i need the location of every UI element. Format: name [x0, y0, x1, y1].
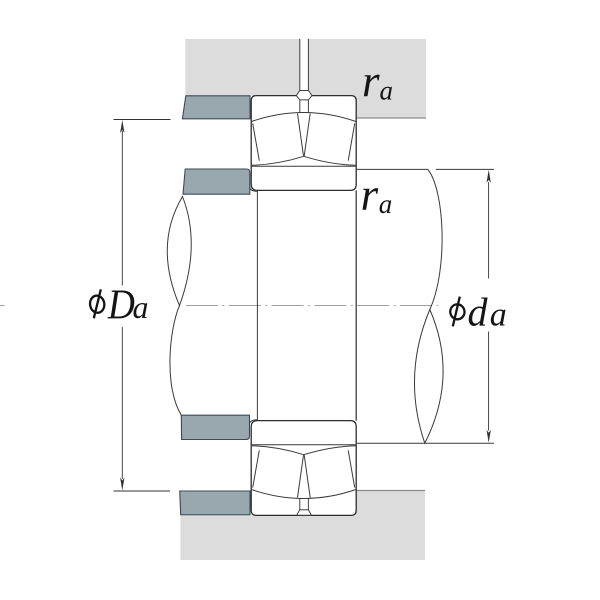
svg-text:r: r: [362, 56, 380, 106]
svg-text:a: a: [379, 189, 393, 219]
svg-text:D: D: [107, 282, 135, 328]
svg-text:a: a: [380, 75, 394, 105]
svg-text:a: a: [490, 296, 507, 333]
svg-text:a: a: [133, 289, 149, 325]
svg-text:r: r: [361, 170, 379, 220]
svg-text:d: d: [468, 289, 489, 334]
